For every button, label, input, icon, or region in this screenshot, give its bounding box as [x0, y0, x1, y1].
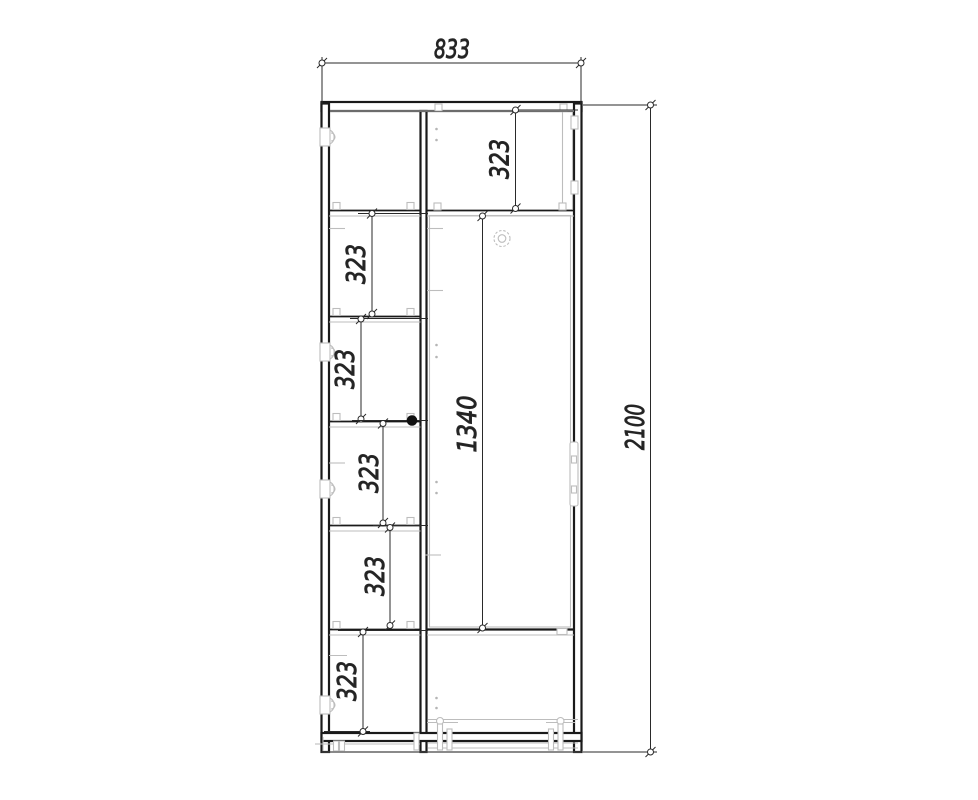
- wardrobe-door: [430, 216, 571, 628]
- leg: [414, 733, 419, 750]
- shelf-spacing-value: 323: [342, 244, 372, 284]
- overall-height-value: 2100: [621, 404, 651, 450]
- shelf-spacing-value: 323: [355, 453, 385, 493]
- leg: [558, 724, 563, 750]
- leg: [438, 724, 443, 750]
- right-section-shelves: [427, 211, 574, 636]
- cabinet-carcass: [322, 102, 582, 752]
- door-height-dimension: 1340: [453, 211, 488, 633]
- leg: [549, 729, 554, 750]
- door-height-value: 1340: [453, 396, 483, 453]
- leg: [334, 741, 339, 751]
- shelf-spacing-dimension-2: 323: [331, 314, 428, 424]
- center-partition: [421, 111, 427, 752]
- connector-dot: [407, 415, 418, 426]
- overall-height-dimension: 2100: [583, 100, 657, 757]
- shelf-spacing-dimension-4: 323: [361, 523, 428, 631]
- drawing-canvas: 833 2100 1340 323 323 323: [0, 0, 978, 800]
- leg: [447, 729, 452, 750]
- shelf-spacing-value: 323: [361, 556, 391, 596]
- hinge-plate-icon: [571, 116, 578, 129]
- shelf-spacing-dimension-3: 323: [352, 419, 428, 529]
- shelf-spacing-dimension-1: 323: [342, 209, 428, 320]
- overall-width-value: 833: [434, 35, 470, 65]
- top-shelf-value: 323: [486, 139, 516, 179]
- shelf-spacing-value: 323: [333, 661, 363, 701]
- shelf-spacing-value: 323: [331, 349, 361, 389]
- overall-width-dimension: 833: [317, 35, 586, 104]
- cabinet-elevation-drawing: 833 2100 1340 323 323 323: [0, 0, 978, 800]
- door-hinge-cup-icon: [494, 231, 510, 247]
- hinge-icon: [320, 480, 335, 498]
- door-handle: [570, 442, 578, 506]
- hinge-plate-icon: [571, 181, 578, 194]
- shelf-pin-holes: [435, 128, 438, 710]
- left-wall: [322, 104, 330, 753]
- hinge-icon: [320, 128, 335, 146]
- right-wall: [574, 104, 582, 753]
- top-shelf-dimension: 323: [486, 105, 579, 214]
- shelf-spacing-dimension-5: 323: [324, 627, 428, 737]
- leg: [340, 741, 345, 751]
